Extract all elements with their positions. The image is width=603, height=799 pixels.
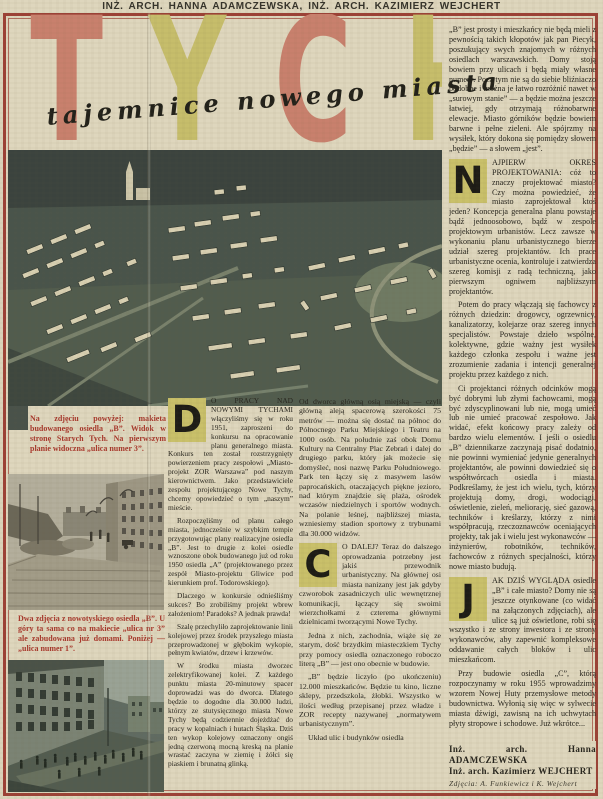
dropcap-c: C — [299, 543, 337, 587]
dropcap-n: N — [449, 159, 487, 203]
paragraph: Przy budowie osiedla „C”, którą rozpoczy… — [449, 669, 596, 728]
column-middle-text: Od dworca główną osią miejską — czyli gł… — [299, 397, 441, 792]
photo-credit: Zdjęcia: A. Funkiewicz i K. Wejchert — [449, 779, 596, 789]
paragraph: W środku miasta dworzec zelektryfikowane… — [168, 662, 293, 769]
paragraph: Potem do pracy włączają się fachowcy z r… — [449, 300, 596, 379]
paragraph: CO DALEJ? Teraz do dalszego oprowadzania… — [299, 542, 441, 627]
paragraph: Jedna z nich, zachodnia, wiąże się ze st… — [299, 631, 441, 669]
paragraph: Rozpoczęliśmy od planu całego miasta, je… — [168, 517, 293, 588]
paragraph: Od dworca główną osią miejską — czyli gł… — [299, 397, 441, 538]
title-letter-y1: Y — [149, 14, 226, 148]
dropcap-j: J — [449, 577, 487, 621]
magazine-page: INŻ. ARCH. HANNA ADAMCZEWSKA, INŻ. ARCH.… — [0, 0, 603, 799]
dropcap-d: D — [168, 398, 206, 442]
paragraph: „B” będzie liczyło (po ukończeniu) 12.00… — [299, 672, 441, 728]
column-left-text: DO PRACY NAD NOWYMI TYCHAMI włączyliśmy … — [168, 397, 293, 792]
paragraph: Dlaczego w konkursie odnieśliśmy sukces?… — [168, 592, 293, 619]
paragraph: DO PRACY NAD NOWYMI TYCHAMI włączyliśmy … — [168, 397, 293, 513]
article-signature: Inż. arch. Hanna ADAMCZEWSKA Inż. arch. … — [449, 741, 596, 789]
photo-edge-fragment — [8, 406, 28, 430]
author-name-1: Inż. arch. Hanna ADAMCZEWSKA — [449, 744, 596, 766]
paragraph: JAK DZIŚ WYGLĄDA osiedle „B” i całe mias… — [449, 576, 596, 665]
paragraph: Ci projektanci różnych odcinków mogą być… — [449, 384, 596, 572]
street-photos-caption: Dwa zdjęcia z nowotyskiego osiedla „B”. … — [18, 614, 165, 654]
author-name-2: Inż. arch. Kazimierz WEJCHERT — [449, 766, 596, 777]
paragraph: Układ ulic i budynków osiedla — [299, 733, 441, 742]
street-construction-photo — [8, 474, 164, 610]
column-right-text: „B” jest prosty i mieszkańcy nie będą mi… — [449, 25, 596, 792]
paragraph: NAJPIERW OKRES PROJEKTOWANIA: cóż to zna… — [449, 158, 596, 297]
authors-header: INŻ. ARCH. HANNA ADAMCZEWSKA, INŻ. ARCH.… — [0, 1, 603, 12]
street-people-photo — [8, 660, 164, 792]
city-model-photo — [8, 150, 442, 406]
model-photo-caption: Na zdjęciu powyżej: makieta budowanego o… — [30, 414, 166, 454]
paragraph: Szalę przechyliło zaprojektowanie linii … — [168, 623, 293, 659]
